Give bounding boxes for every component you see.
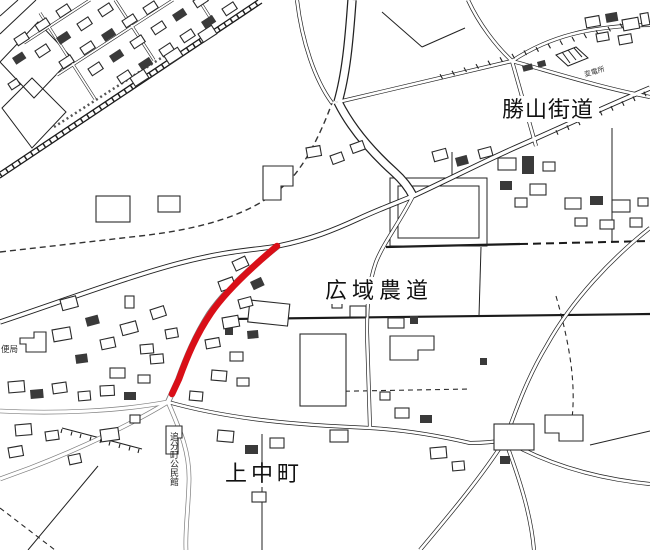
building <box>217 430 234 442</box>
building <box>85 315 100 327</box>
building <box>100 385 115 396</box>
building <box>180 29 195 43</box>
building <box>237 378 249 386</box>
building <box>245 445 258 454</box>
building <box>522 156 534 174</box>
building <box>77 17 92 31</box>
building <box>500 181 512 190</box>
building <box>250 277 265 290</box>
building <box>198 25 217 42</box>
building <box>15 424 32 436</box>
building <box>388 318 404 328</box>
map-canvas: 勝山街道 広域農道 上中町 追分町公民館 便局 変電所 <box>0 0 650 550</box>
building <box>330 152 344 165</box>
building <box>138 57 153 71</box>
building <box>151 21 166 35</box>
building <box>230 352 243 361</box>
building <box>390 336 434 360</box>
building <box>120 321 138 336</box>
building <box>117 70 132 84</box>
building <box>618 34 632 45</box>
building <box>498 158 516 170</box>
building <box>545 415 583 441</box>
building <box>596 32 609 42</box>
field-line <box>590 431 650 445</box>
building <box>100 337 116 350</box>
road-fill <box>0 402 168 412</box>
building <box>600 220 614 229</box>
building <box>543 162 555 171</box>
road-fill <box>505 228 650 440</box>
building <box>150 306 166 320</box>
building <box>109 49 124 63</box>
building <box>124 392 136 400</box>
road-fill <box>338 102 413 196</box>
building <box>248 300 290 326</box>
building <box>222 315 240 329</box>
road-casing <box>468 0 512 61</box>
field-boundaries <box>0 0 650 550</box>
building <box>8 79 20 90</box>
building <box>35 44 50 58</box>
building <box>158 196 180 212</box>
building <box>189 391 203 401</box>
building <box>211 370 227 381</box>
building <box>585 16 601 28</box>
building <box>640 13 650 26</box>
building <box>75 353 88 364</box>
building <box>30 389 44 399</box>
substation-hatch <box>556 47 588 66</box>
building <box>455 155 469 167</box>
building <box>247 330 259 339</box>
building <box>530 184 546 195</box>
building <box>205 338 220 349</box>
building <box>35 18 50 32</box>
label-post-office: 便局 <box>1 344 18 354</box>
building <box>98 3 113 17</box>
building <box>140 344 154 354</box>
building <box>12 51 26 64</box>
building <box>52 382 67 394</box>
building <box>432 148 448 161</box>
building <box>222 2 237 16</box>
building <box>193 0 208 8</box>
building <box>96 196 130 222</box>
building <box>130 415 140 423</box>
building <box>480 358 487 365</box>
building <box>252 492 266 502</box>
post-office-building <box>20 332 46 352</box>
field-plot <box>300 334 346 406</box>
building <box>350 306 366 317</box>
building <box>68 454 82 465</box>
label-kaminaka-cho: 上中町 <box>225 461 303 486</box>
embankment-ticks <box>61 17 647 453</box>
building <box>605 12 618 23</box>
building <box>45 430 59 441</box>
building <box>130 35 145 49</box>
label-substation: 変電所 <box>583 64 606 79</box>
building <box>306 146 322 158</box>
building <box>537 60 546 68</box>
building <box>420 415 432 423</box>
building <box>395 408 409 418</box>
building <box>612 200 630 212</box>
building <box>622 17 640 31</box>
building <box>380 392 390 400</box>
building <box>8 446 24 458</box>
building <box>150 354 164 364</box>
field-line <box>479 247 481 316</box>
building <box>500 456 510 464</box>
building <box>125 296 134 308</box>
building <box>88 62 103 76</box>
building <box>630 218 642 227</box>
building <box>56 4 71 18</box>
building <box>494 424 534 450</box>
label-koiki-nodo: 広域農道 <box>325 278 433 303</box>
road-casing <box>297 0 332 103</box>
building <box>515 198 527 207</box>
road-fill <box>338 0 352 102</box>
building <box>575 218 587 226</box>
building <box>410 316 418 324</box>
building <box>100 427 119 441</box>
map-screenshot: 勝山街道 広域農道 上中町 追分町公民館 便局 変電所 <box>0 0 650 550</box>
building <box>165 328 178 339</box>
building <box>430 447 447 459</box>
building <box>110 368 125 378</box>
building <box>172 8 187 22</box>
building <box>350 141 365 154</box>
building <box>78 391 91 401</box>
building <box>263 166 293 200</box>
building <box>52 327 72 342</box>
road-casing <box>505 228 650 440</box>
label-community-center: 追分町公民館 <box>169 431 179 487</box>
building <box>590 196 603 205</box>
field-line-dashed <box>0 508 55 550</box>
field-line <box>230 314 650 319</box>
building <box>138 375 150 383</box>
roads <box>0 0 650 550</box>
building <box>638 198 648 206</box>
building <box>8 381 25 393</box>
building <box>565 198 581 209</box>
field-line <box>0 0 36 34</box>
building <box>330 430 348 442</box>
label-katsuyama-kaido: 勝山街道 <box>502 97 594 122</box>
building <box>452 461 465 471</box>
building <box>270 438 284 448</box>
road-fill <box>297 0 332 103</box>
road-fill <box>338 61 512 102</box>
field-line <box>382 12 465 47</box>
